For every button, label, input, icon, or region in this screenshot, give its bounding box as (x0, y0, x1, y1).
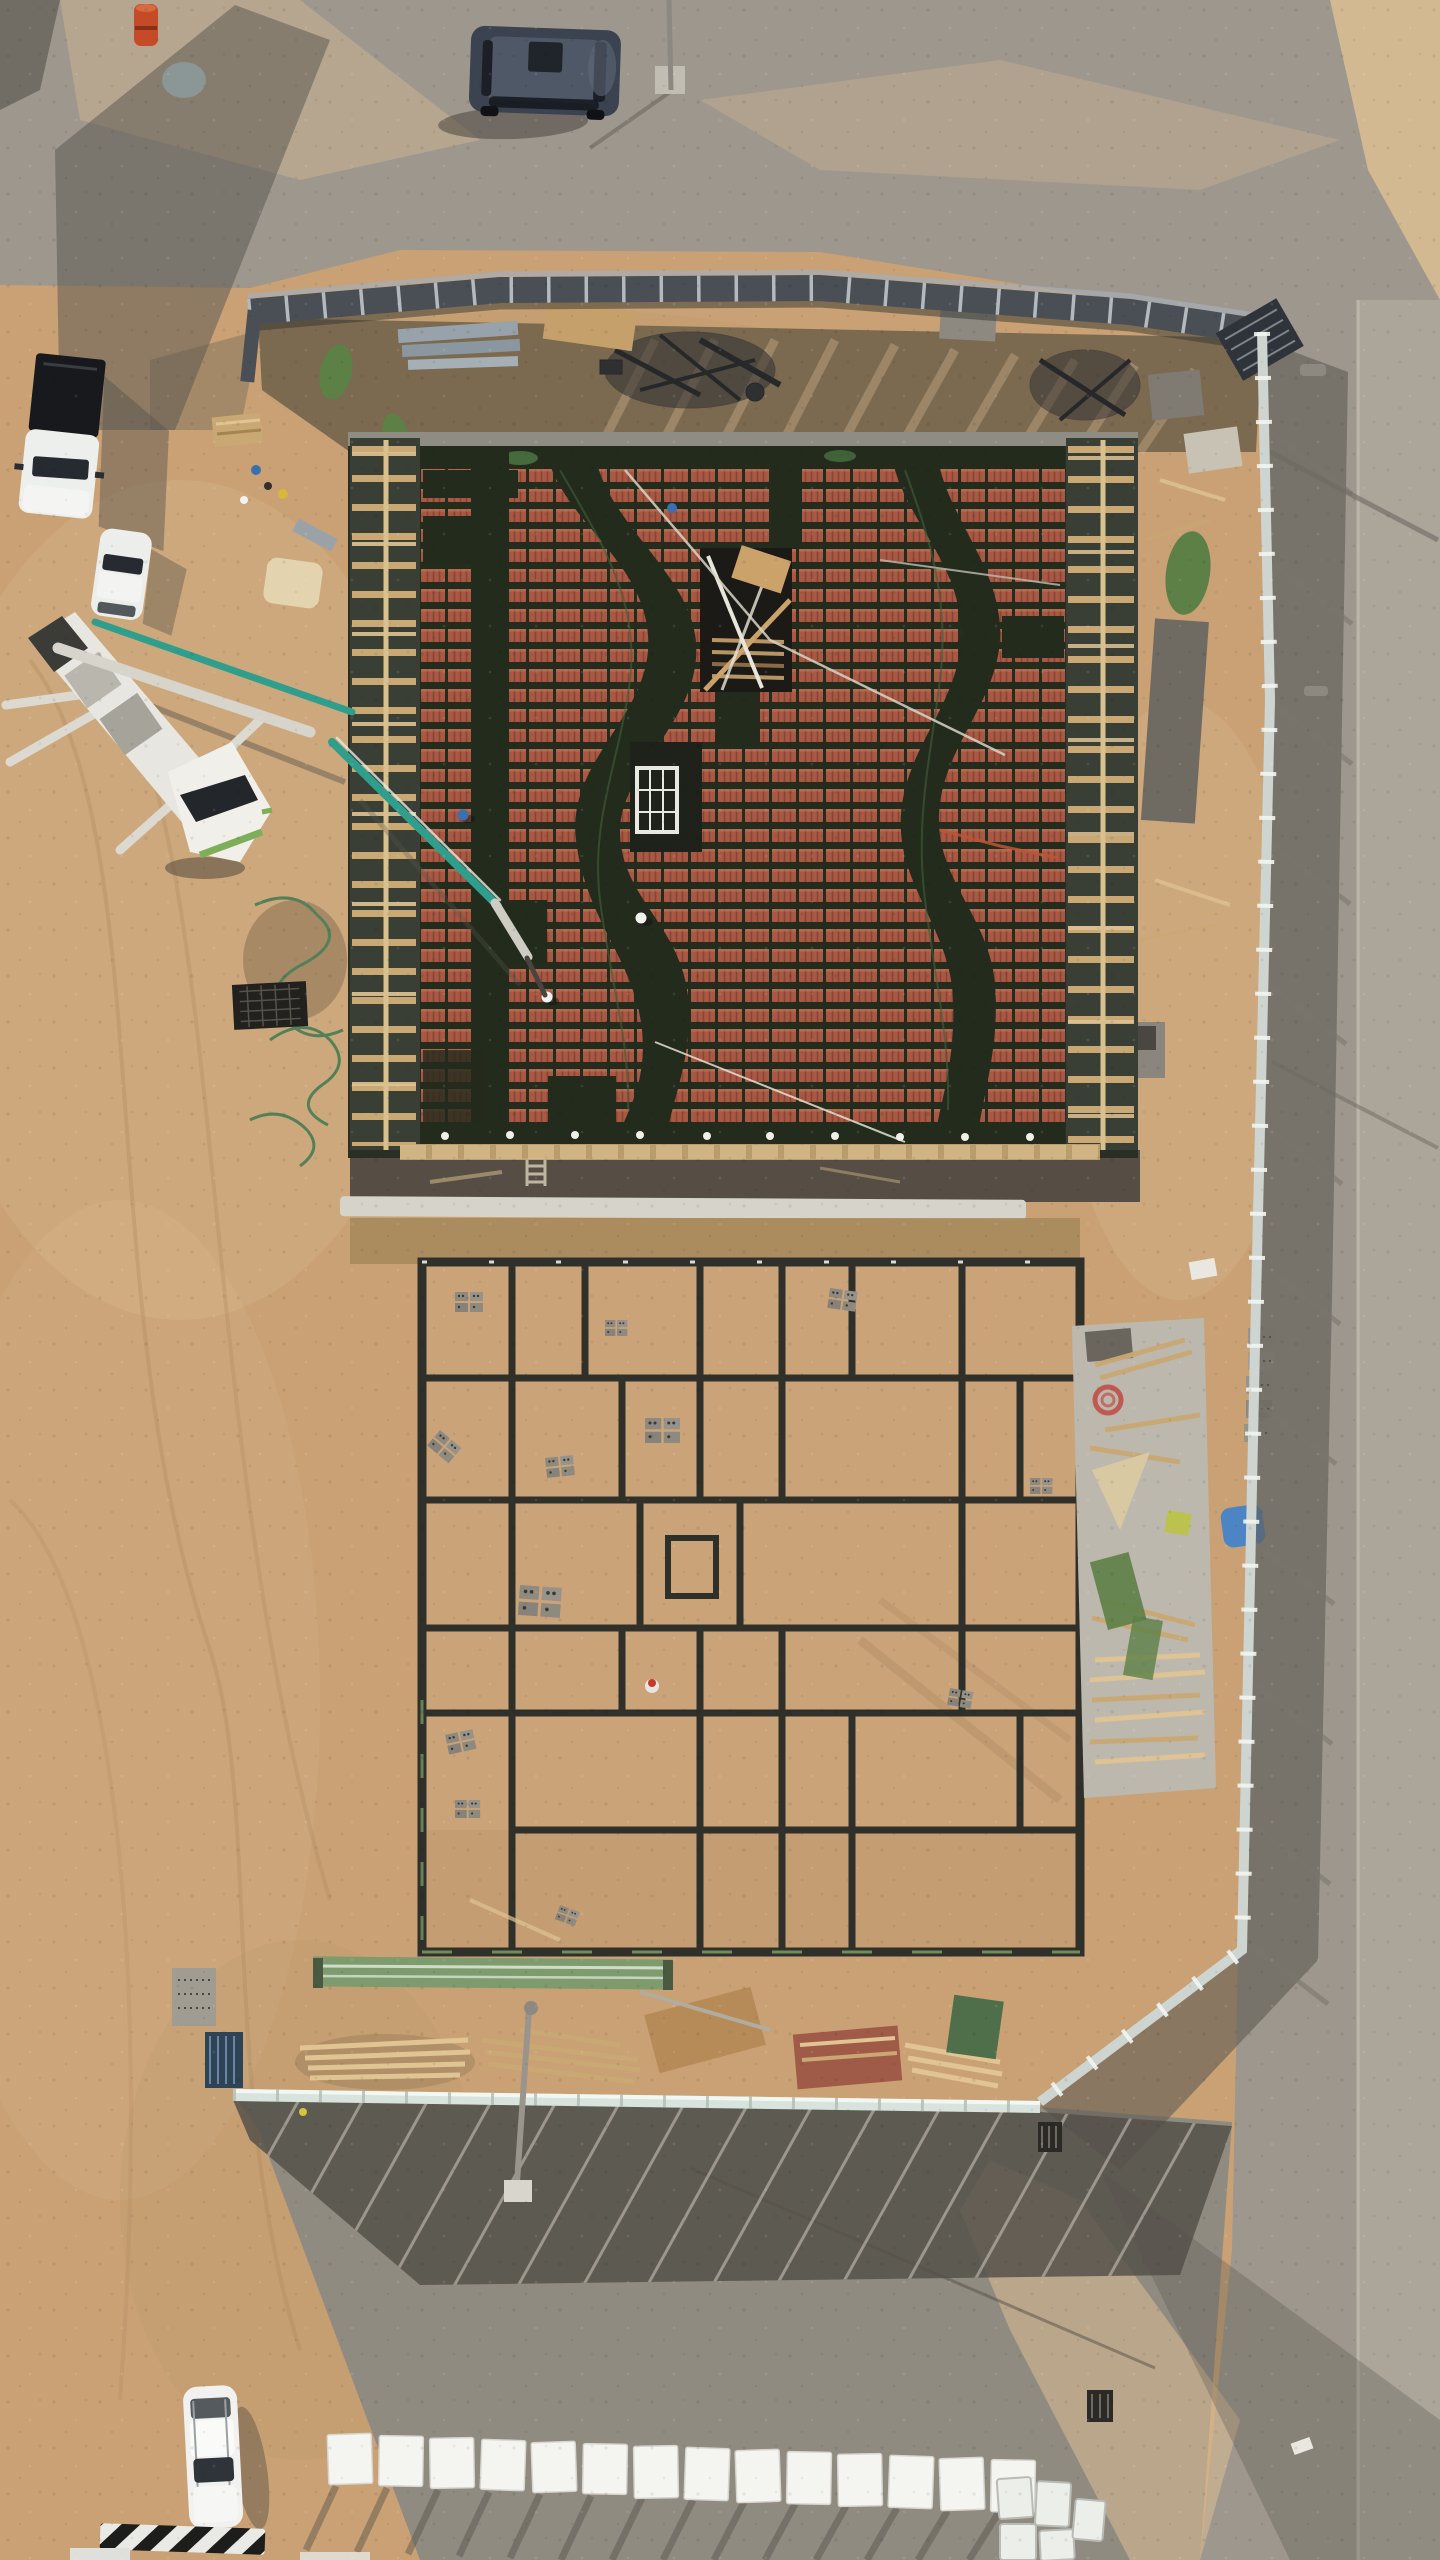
grain-overlay (0, 0, 1440, 2560)
construction-site-aerial-photo (0, 0, 1440, 2560)
aerial-photo-stage (0, 0, 1440, 2560)
